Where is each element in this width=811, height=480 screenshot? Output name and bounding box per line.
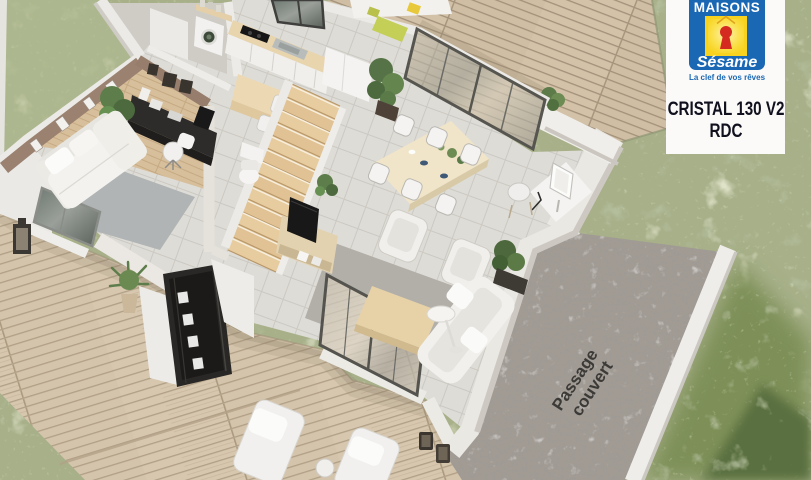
svg-text:MAISONS: MAISONS (694, 0, 761, 15)
svg-text:La clef de vos rêves: La clef de vos rêves (689, 73, 766, 82)
svg-text:Sésame: Sésame (697, 54, 758, 71)
svg-text:RDC: RDC (710, 119, 743, 141)
svg-text:CRISTAL 130 V2: CRISTAL 130 V2 (668, 97, 785, 119)
